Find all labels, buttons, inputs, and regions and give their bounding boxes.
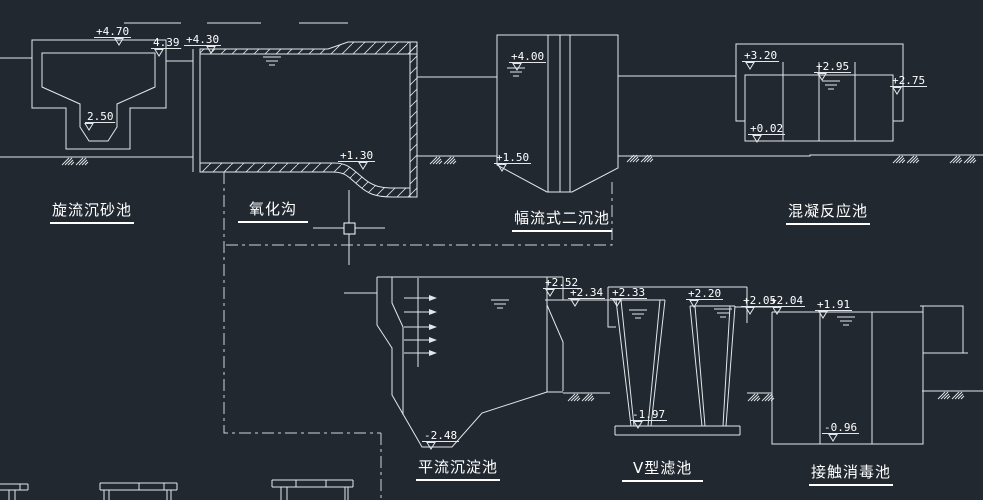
elevation-label[interactable]: +1.91 — [817, 298, 850, 311]
elevation-label[interactable]: +2.75 — [892, 74, 925, 87]
elevation-label[interactable]: +2.04 — [770, 294, 803, 307]
level-triangle-icon — [359, 163, 367, 170]
level-triangle-icon — [513, 64, 521, 71]
level-triangle-icon — [893, 88, 901, 95]
cad-model-space: +4.704.39+4.30+1.302.50+4.00+1.50+3.20+2… — [0, 0, 983, 500]
tank-label-v-filter[interactable]: V型滤池 — [622, 460, 703, 482]
elevation-marker[interactable]: +4.00 — [509, 50, 546, 70]
ground-line — [0, 155, 983, 393]
elevation-label[interactable]: +3.20 — [744, 49, 777, 62]
elevation-label[interactable]: +2.20 — [688, 287, 721, 300]
elevation-marker[interactable]: +1.50 — [494, 151, 531, 171]
elevation-label[interactable]: +2.34 — [570, 286, 603, 299]
elevation-label[interactable]: -2.48 — [424, 429, 457, 442]
crosshair-cursor — [313, 190, 385, 265]
level-triangle-icon — [85, 124, 93, 131]
elevation-label[interactable]: -1.97 — [632, 408, 665, 421]
level-triangle-icon — [634, 422, 642, 429]
elevation-marker[interactable]: +0.02 — [748, 122, 785, 142]
ground-soil-symbol — [62, 155, 976, 401]
elevation-annotations: +4.704.39+4.30+1.302.50+4.00+1.50+3.20+2… — [85, 25, 927, 449]
oxidation-ditch-drawing[interactable] — [193, 23, 417, 197]
elevation-label[interactable]: +2.95 — [816, 60, 849, 73]
process-elevation-drawing: +4.704.39+4.30+1.302.50+4.00+1.50+3.20+2… — [0, 0, 983, 500]
elevation-marker[interactable]: +2.04 — [768, 294, 805, 314]
elevation-marker[interactable]: 2.50 — [85, 110, 115, 130]
pipe-support-benches[interactable] — [0, 480, 353, 500]
level-triangle-icon — [115, 39, 123, 46]
elevation-marker[interactable]: +3.20 — [742, 49, 779, 69]
elevation-marker[interactable]: -0.96 — [822, 421, 859, 441]
elevation-marker[interactable]: +2.95 — [814, 60, 851, 80]
level-triangle-icon — [829, 435, 837, 442]
elevation-marker[interactable]: +2.33 — [610, 286, 647, 306]
elevation-label[interactable]: +1.30 — [340, 149, 373, 162]
elevation-label[interactable]: 4.39 — [153, 36, 180, 49]
elevation-label[interactable]: +0.02 — [750, 122, 783, 135]
tank-label-secondary-clarifier[interactable]: 幅流式二沉池 — [512, 210, 612, 232]
elevation-label[interactable]: -0.96 — [824, 421, 857, 434]
tank-label-contact-tank[interactable]: 接触消毒池 — [809, 464, 893, 486]
tank-label-sedimentation-tank[interactable]: 平流沉淀池 — [416, 459, 500, 481]
level-triangle-icon — [773, 308, 781, 315]
tank-label-grit-chamber[interactable]: 旋流沉砂池 — [50, 202, 134, 224]
contact-tank-drawing[interactable] — [772, 306, 968, 444]
elevation-label[interactable]: 2.50 — [87, 110, 114, 123]
elevation-marker[interactable]: +4.70 — [94, 25, 131, 45]
elevation-label[interactable]: +4.70 — [96, 25, 129, 38]
tank-label-oxidation-ditch[interactable]: 氧化沟 — [238, 201, 308, 223]
elevation-label[interactable]: +2.33 — [612, 286, 645, 299]
tank-label-coagulation-tank[interactable]: 混凝反应池 — [786, 203, 870, 225]
level-triangle-icon — [427, 443, 435, 450]
elevation-label[interactable]: +4.30 — [186, 33, 219, 46]
level-triangle-icon — [746, 63, 754, 70]
elevation-label[interactable]: +4.00 — [511, 50, 544, 63]
elevation-marker[interactable]: +2.75 — [890, 74, 927, 94]
level-triangle-icon — [155, 50, 163, 57]
secondary-clarifier-drawing[interactable] — [417, 35, 736, 192]
elevation-marker[interactable]: +2.34 — [568, 286, 605, 306]
elevation-marker[interactable]: +1.91 — [815, 298, 852, 318]
sedimentation-tank-drawing[interactable] — [344, 277, 616, 447]
elevation-marker[interactable]: +2.20 — [686, 287, 723, 307]
elevation-label[interactable]: +1.50 — [496, 151, 529, 164]
